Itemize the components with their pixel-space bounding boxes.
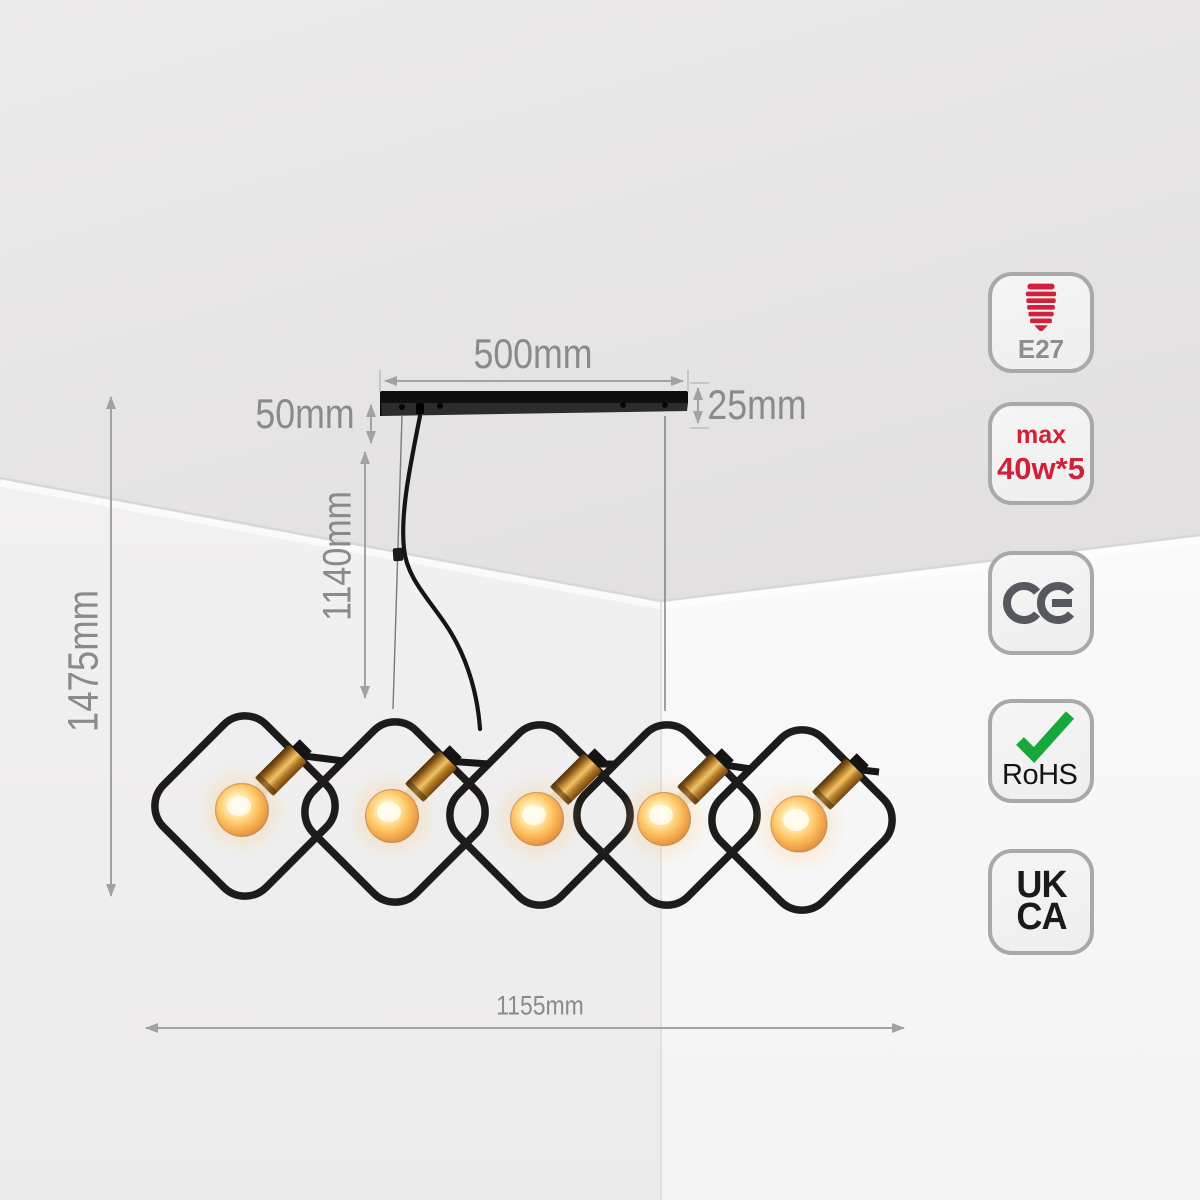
dimension-label-overall-height: 1475mm xyxy=(60,590,109,732)
ce-mark-icon xyxy=(1003,580,1079,626)
screw xyxy=(437,403,443,409)
dimension-label-overall-width: 1155mm xyxy=(496,991,584,1022)
green-check-icon xyxy=(1012,711,1080,763)
bulb-5 xyxy=(751,776,847,872)
badge-e27-socket: E27 xyxy=(988,272,1094,373)
badge-max-power-line1: max xyxy=(1016,420,1066,451)
bulb-4 xyxy=(618,773,710,865)
bulb-2 xyxy=(346,770,438,862)
badge-rohs: RoHS xyxy=(988,699,1094,803)
badge-ukca-line2: CA xyxy=(1016,902,1066,934)
dimension-label-bar-height: 25mm xyxy=(707,381,806,429)
badge-e27-label: E27 xyxy=(1018,336,1064,362)
bulb-3 xyxy=(491,773,583,865)
badge-max-power: max 40w*5 xyxy=(988,402,1094,505)
dimension-label-drop-height: 1140mm xyxy=(316,491,361,621)
wire-clip xyxy=(393,548,404,562)
screw xyxy=(620,402,626,408)
badge-rohs-label: RoHS xyxy=(1002,761,1077,790)
bulb-1 xyxy=(196,764,288,856)
badge-ukca: UK CA xyxy=(988,849,1094,955)
screw xyxy=(399,404,405,410)
badge-ce xyxy=(988,551,1094,655)
cord-grommet xyxy=(416,403,424,414)
e27-bulb-socket-icon xyxy=(1020,283,1062,333)
badge-max-power-line2: 40w*5 xyxy=(997,451,1085,487)
dimension-label-bar-length: 500mm xyxy=(473,330,592,378)
product-spec-diagram: 500mm 25mm 50mm 1140mm 1475mm 1155mm E27… xyxy=(0,0,1200,1200)
dimension-label-suspension-offset: 50mm xyxy=(255,390,354,438)
screw xyxy=(662,402,668,408)
